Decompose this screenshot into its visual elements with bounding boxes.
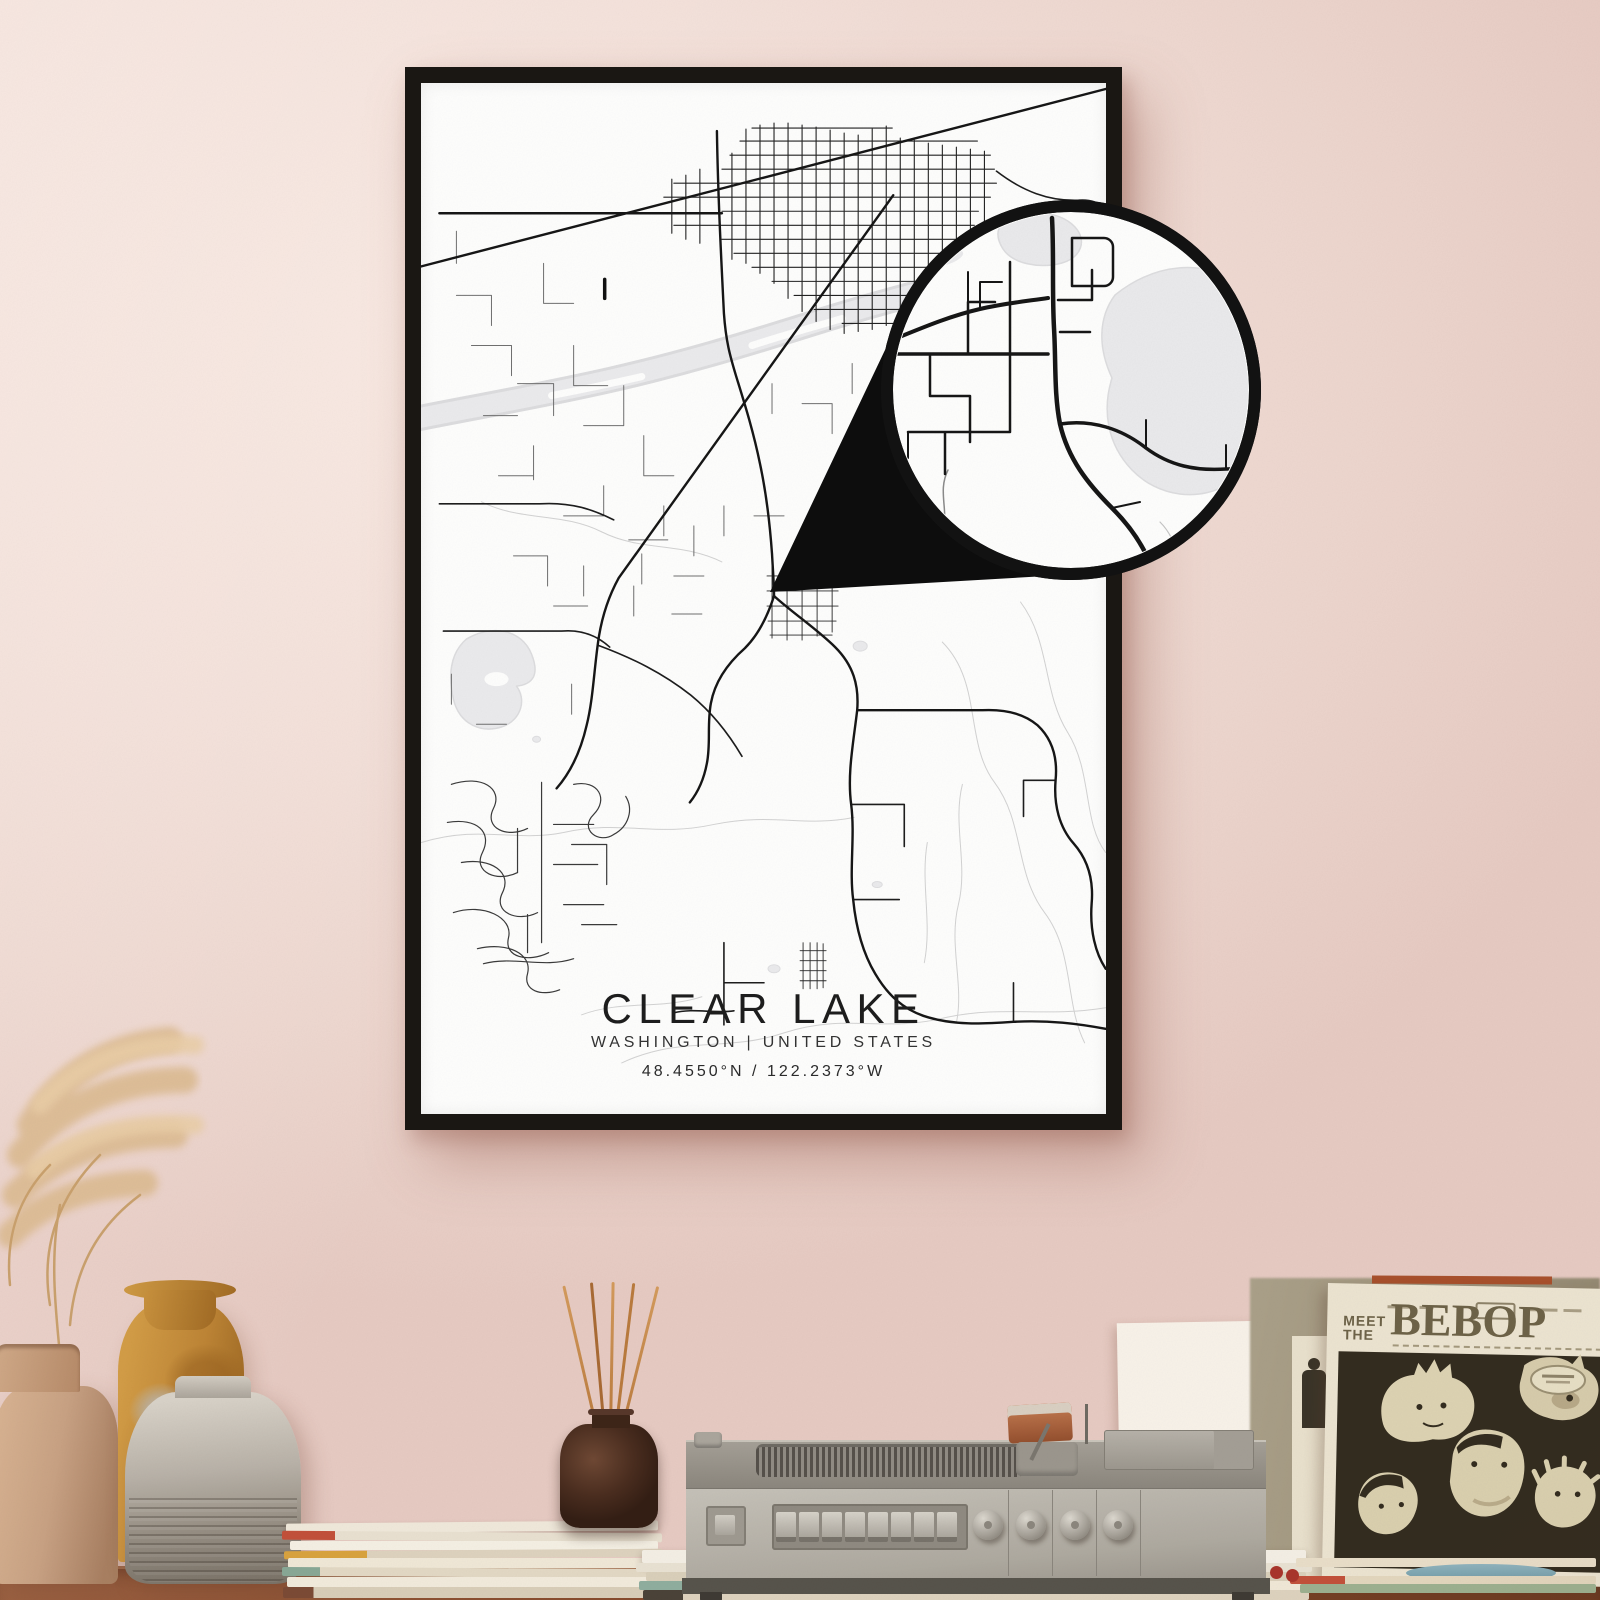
turntable-platter <box>756 1444 1024 1477</box>
vase-tan <box>0 1386 118 1584</box>
deck-corner-knob <box>694 1432 722 1448</box>
bass-knob <box>1060 1510 1090 1540</box>
poster-coordinates: 48.4550°N / 122.2373°W <box>421 1063 1106 1081</box>
map-lakes <box>451 631 883 973</box>
preset-button-row <box>772 1504 968 1550</box>
preset-button <box>914 1512 934 1542</box>
preset-button <box>799 1512 819 1542</box>
preset-button <box>845 1512 865 1542</box>
tonearm-rest-post <box>1085 1404 1088 1444</box>
red-knob <box>1286 1569 1299 1582</box>
vase-gray <box>125 1392 301 1584</box>
map-contours <box>421 502 1105 1063</box>
player-base <box>682 1578 1270 1594</box>
preset-button <box>937 1512 957 1542</box>
sleeve-title: BEBOP <box>1390 1292 1547 1348</box>
player-foot <box>1232 1592 1254 1600</box>
figure-silhouette-body <box>1302 1370 1326 1428</box>
preset-button <box>776 1512 796 1542</box>
volume-knob <box>973 1510 1003 1540</box>
diffuser-bottle <box>560 1424 658 1528</box>
figure-silhouette-head <box>1308 1358 1320 1370</box>
flat-records <box>1286 1556 1600 1600</box>
treble-knob <box>1103 1510 1133 1540</box>
magazine-stack <box>282 1522 668 1600</box>
power-button <box>706 1506 746 1546</box>
red-knob <box>1270 1566 1283 1579</box>
preset-button <box>822 1512 842 1542</box>
sleeve-word-meet: MEETTHE <box>1343 1313 1386 1342</box>
poster-frame: CLEAR LAKE WASHINGTON | UNITED STATES 48… <box>405 67 1122 1130</box>
record-player <box>686 1428 1266 1592</box>
map-subdivision <box>447 781 629 993</box>
map-svg <box>421 83 1106 1114</box>
magazine <box>283 1587 667 1598</box>
player-foot <box>700 1592 722 1600</box>
tuning-knob <box>1016 1510 1046 1540</box>
poster-title: CLEAR LAKE <box>421 985 1106 1033</box>
preset-button <box>868 1512 888 1542</box>
magazine <box>287 1577 663 1587</box>
tonearm-base <box>1016 1442 1078 1476</box>
record-sleeve: MEETTHE BEBOP <box>1322 1283 1600 1588</box>
map-main-roads <box>421 89 1105 1029</box>
player-lid-panel <box>1104 1430 1254 1470</box>
reed-diffuser <box>558 1282 668 1532</box>
map-hamlet-grid <box>767 566 838 989</box>
preset-button <box>891 1512 911 1542</box>
map-poster: CLEAR LAKE WASHINGTON | UNITED STATES 48… <box>421 83 1106 1114</box>
scene: CLEAR LAKE WASHINGTON | UNITED STATES 48… <box>0 0 1600 1600</box>
map-town-grid <box>664 123 997 333</box>
poster-subtitle: WASHINGTON | UNITED STATES <box>421 1034 1106 1052</box>
record-edge-orange <box>1372 1276 1552 1285</box>
